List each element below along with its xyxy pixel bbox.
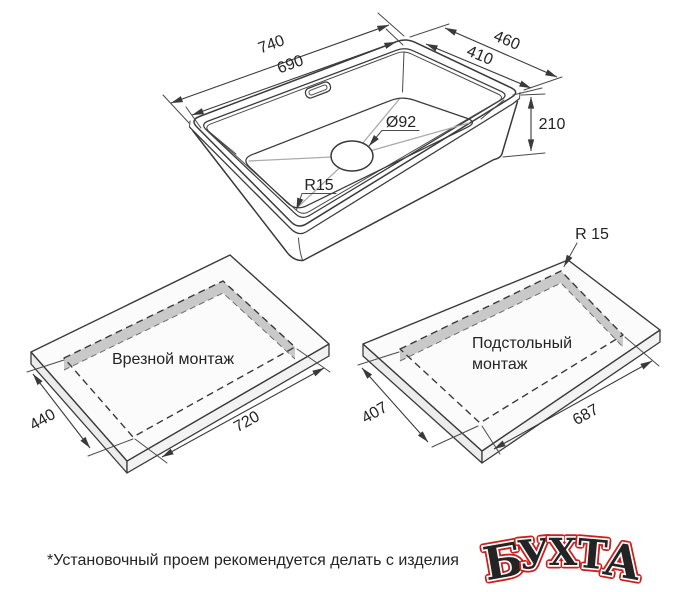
extension-line bbox=[378, 13, 404, 36]
sink-body-front-corner-edge bbox=[299, 238, 303, 260]
logo-letter: А А А bbox=[600, 531, 647, 591]
extension-line bbox=[503, 153, 545, 157]
drawing-canvas: 740 690 460 410 210 Ø92 R15 440 bbox=[0, 0, 688, 592]
extension-line bbox=[410, 24, 449, 37]
sink-wall-line-back bbox=[403, 52, 405, 92]
dim-text-corner-radius: R 15 bbox=[575, 226, 609, 243]
dim-line-690 bbox=[192, 42, 396, 115]
undermount-diagram: R 15 407 687 Подстольный монтаж bbox=[358, 226, 660, 463]
dim-text-cutout-width: 407 bbox=[359, 399, 391, 427]
svg-text:Х: Х bbox=[549, 530, 578, 574]
logo-letter: У У У bbox=[516, 530, 553, 580]
footer-note: *Установочный проем рекомендуется делать… bbox=[47, 552, 459, 569]
brand-logo: Б Б Б У У У Х Х Х Т Т Т А А А bbox=[479, 530, 646, 592]
dim-text-cutout-length: 687 bbox=[570, 401, 602, 429]
sink-body-outline bbox=[193, 102, 518, 261]
technical-drawing-page: 740 690 460 410 210 Ø92 R15 440 bbox=[0, 0, 688, 592]
sink-rim-corner-tick-left bbox=[190, 121, 191, 127]
sink-opening-outer-line bbox=[204, 49, 505, 218]
svg-text:А: А bbox=[600, 531, 647, 591]
inset-mount-diagram: 440 720 Врезной монтаж bbox=[27, 255, 330, 473]
dim-text-corner-radius: R15 bbox=[304, 177, 333, 194]
dim-text-drain: Ø92 bbox=[386, 114, 416, 131]
sink-outer-rim bbox=[194, 40, 516, 226]
inset-mount-label: Врезной монтаж bbox=[112, 351, 234, 368]
extension-line bbox=[163, 95, 189, 123]
svg-text:У: У bbox=[516, 530, 553, 580]
dim-text-inner-width: 410 bbox=[464, 43, 495, 69]
extension-line bbox=[521, 94, 545, 95]
dim-text-outer-length: 740 bbox=[256, 32, 287, 57]
undermount-label-line2: монтаж bbox=[472, 356, 528, 373]
drain-hole bbox=[331, 141, 373, 171]
dim-text-height: 210 bbox=[539, 116, 566, 133]
dim-text-cutout-length: 720 bbox=[231, 408, 263, 436]
undermount-label-line1: Подстольный bbox=[472, 335, 572, 352]
sink-isometric-view: 740 690 460 410 210 Ø92 R15 bbox=[163, 13, 565, 261]
dim-text-inner-length: 690 bbox=[275, 52, 306, 77]
dim-text-cutout-width: 440 bbox=[27, 406, 59, 434]
logo-letter: Х Х Х bbox=[549, 530, 578, 574]
